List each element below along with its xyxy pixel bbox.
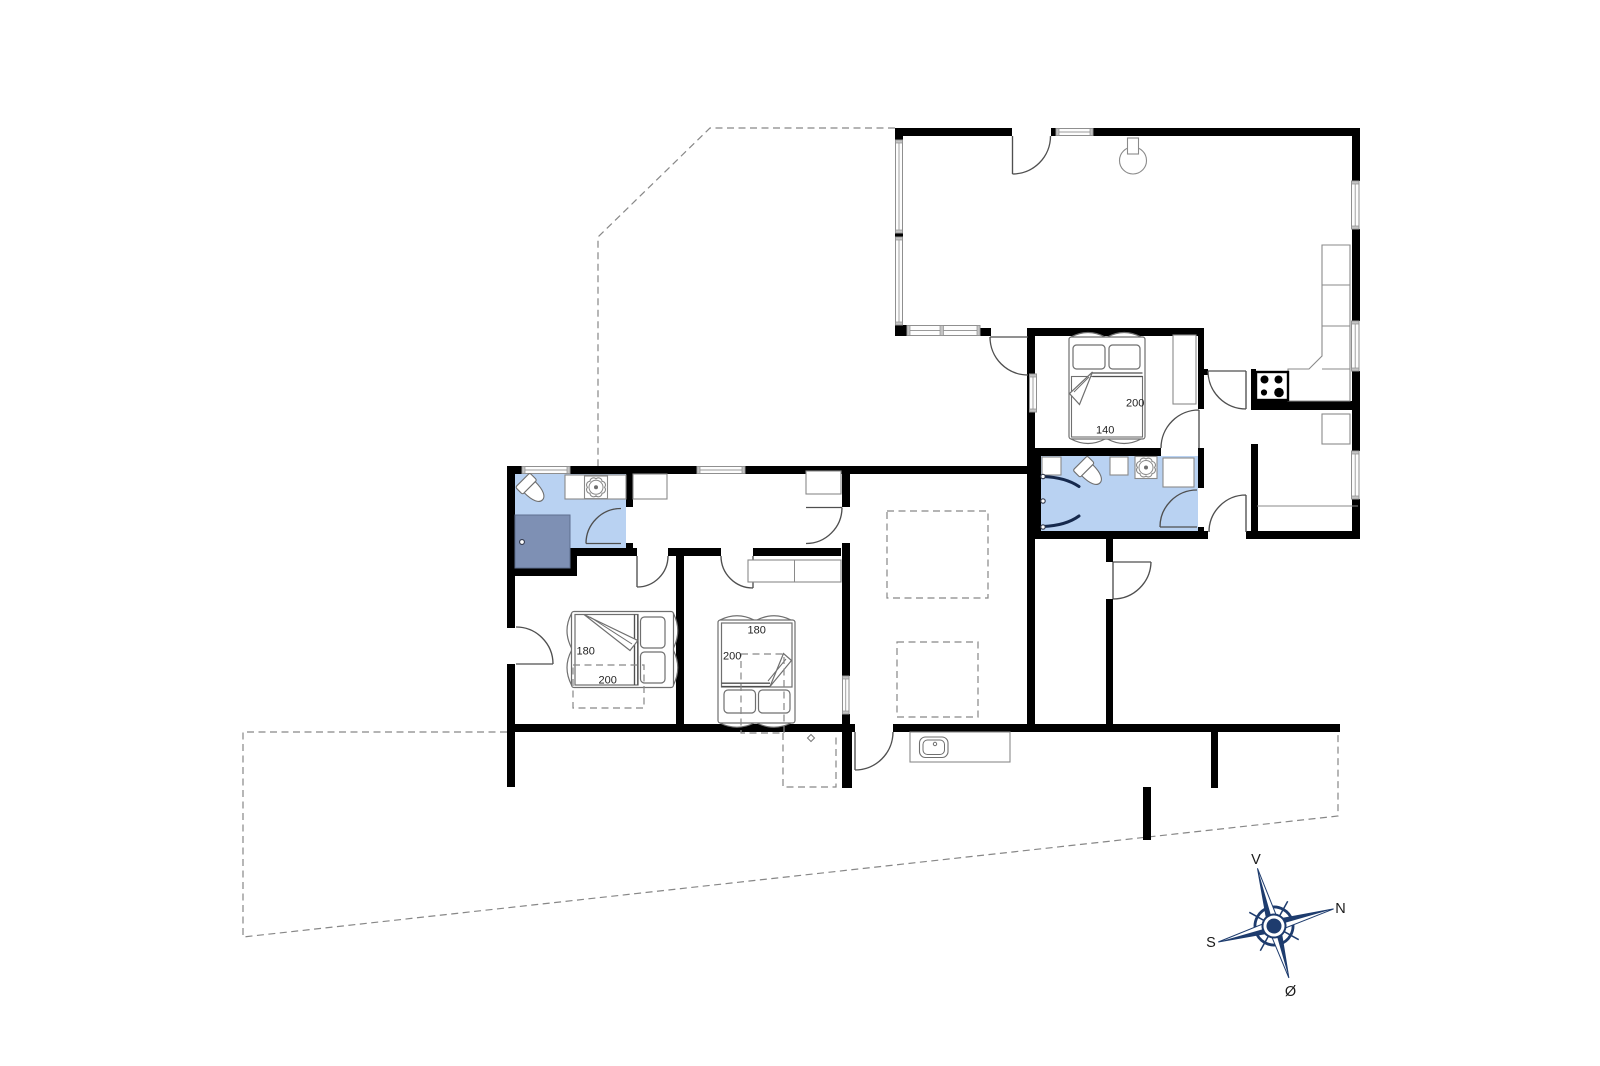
svg-text:S: S	[1206, 935, 1216, 951]
svg-text:200: 200	[723, 651, 741, 663]
svg-text:140: 140	[1096, 425, 1114, 437]
svg-text:Ø: Ø	[1285, 984, 1296, 1000]
svg-text:180: 180	[577, 646, 595, 658]
svg-text:200: 200	[1126, 398, 1144, 410]
svg-text:V: V	[1251, 852, 1261, 868]
svg-text:180: 180	[748, 625, 766, 637]
svg-text:200: 200	[599, 675, 617, 687]
svg-text:N: N	[1335, 901, 1345, 917]
